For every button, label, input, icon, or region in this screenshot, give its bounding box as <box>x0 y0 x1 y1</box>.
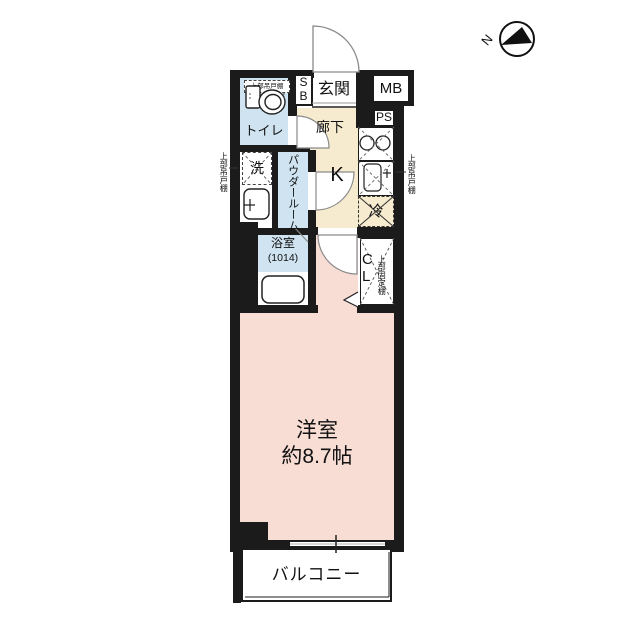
bathroom-label: 浴室 (1014) <box>258 237 308 265</box>
powder-room-label: パウダールーム <box>286 154 299 228</box>
laundry-space: 洗 <box>242 152 272 185</box>
room-vestibule-floor <box>316 235 358 313</box>
wall-entrance-right <box>356 70 368 128</box>
meter-box: MB <box>372 74 410 103</box>
kitchen-upper-shelf-label: 上部吊戸棚 <box>407 149 416 199</box>
western-room-size: 約8.7帖 <box>281 445 352 468</box>
wall-bath-left <box>230 222 258 305</box>
wall-bath-right <box>308 228 316 313</box>
hallway-label: 廊下 <box>308 119 352 135</box>
western-room-name: 洋室 <box>296 419 338 442</box>
north-compass-icon <box>500 22 534 56</box>
pipe-space-box: PS <box>373 109 395 127</box>
entrance-label: 玄関 <box>312 81 356 99</box>
western-room-label: 洋室 約8.7帖 <box>240 418 394 471</box>
balcony-label: バルコニー <box>272 565 362 585</box>
wall-powder-kitchen-lower <box>308 210 316 228</box>
closet-fixed-shelf-label: 上部固定棚 <box>377 247 386 303</box>
floor-plan: MB PS SB 冷 洗 上部吊戸棚 バルコニー <box>0 0 640 640</box>
kitchen-floor <box>316 150 358 228</box>
balcony-window <box>290 540 385 548</box>
meter-box-label: MB <box>380 80 403 97</box>
wall-fridge-closet <box>357 227 404 238</box>
shoe-box-label: SB <box>299 76 309 104</box>
toilet-upper-shelf-box: 上部吊戸棚 <box>244 80 290 93</box>
wall-under-toilet <box>230 145 310 152</box>
toilet-upper-shelf-label: 上部吊戸棚 <box>251 83 284 90</box>
balcony: バルコニー <box>241 548 392 602</box>
washer-upper-shelf-label: 上部吊戸棚 <box>219 147 228 197</box>
kitchen-label: K <box>316 164 358 187</box>
wall-bath-bottom <box>230 305 318 313</box>
wall-balcony-left <box>233 542 241 603</box>
wall-right <box>394 106 404 552</box>
pipe-space-label: PS <box>376 111 392 125</box>
refrigerator-label: 冷 <box>368 203 383 220</box>
wall-closet-bottom <box>357 305 404 313</box>
stove-unit <box>358 127 394 161</box>
entrance-door-swing <box>313 26 359 72</box>
washbasin-icon <box>244 189 269 219</box>
toilet-label: トイレ <box>240 124 288 139</box>
wall-kitchen-room-stub <box>308 227 318 235</box>
laundry-label: 洗 <box>250 160 264 176</box>
wall-powder-kitchen-upper <box>308 150 316 172</box>
shoe-box: SB <box>294 74 313 106</box>
refrigerator-space: 冷 <box>358 196 394 227</box>
wall-notch <box>230 522 268 542</box>
wall-laundry-powder <box>272 152 278 228</box>
bathroom-size: (1014) <box>268 252 298 264</box>
north-label: N <box>479 32 496 49</box>
bathtub-icon <box>262 276 304 303</box>
bathroom-name: 浴室 <box>271 236 295 250</box>
closet-label: CL <box>362 251 375 286</box>
sink-unit <box>358 161 394 196</box>
